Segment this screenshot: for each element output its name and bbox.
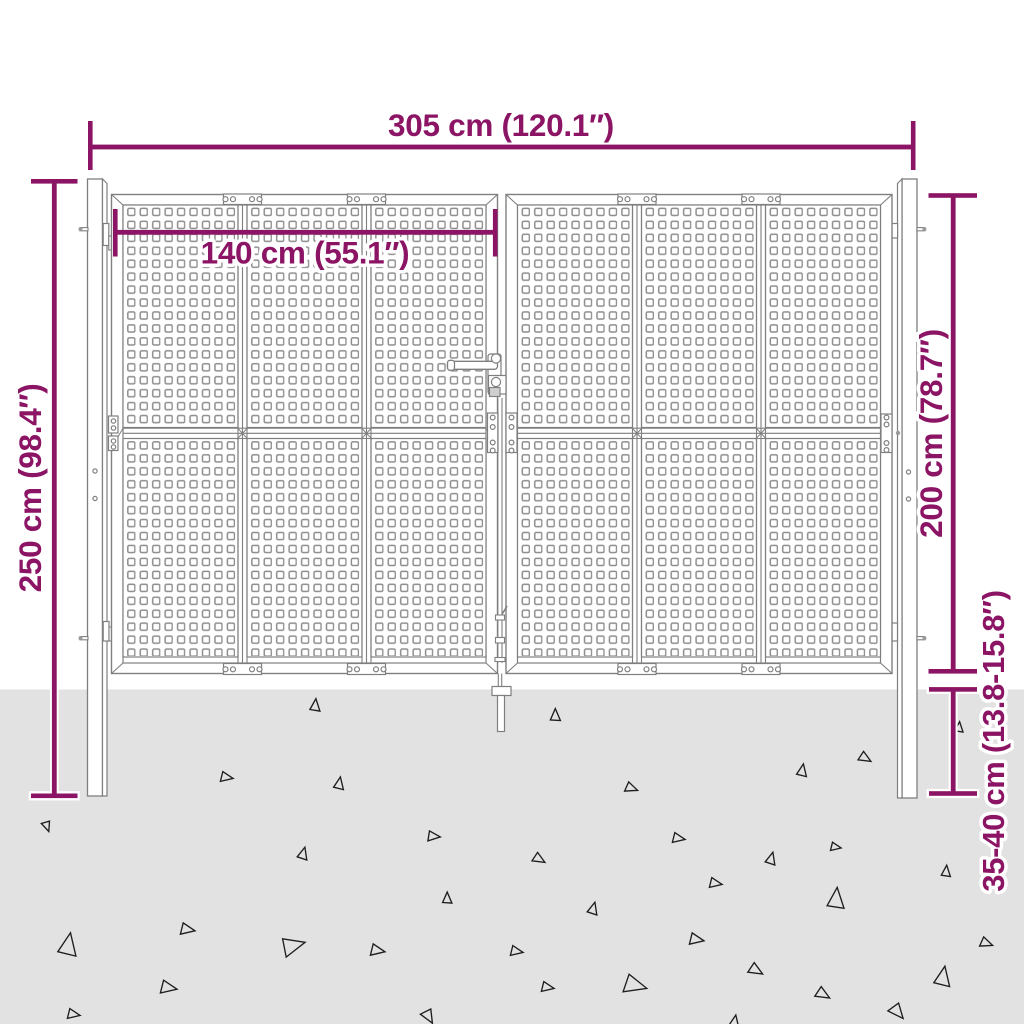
svg-text:250 cm (98.4″): 250 cm (98.4″) [12, 384, 48, 593]
svg-text:35-40 cm (13.8-15.8″): 35-40 cm (13.8-15.8″) [976, 590, 1011, 892]
svg-text:140 cm (55.1″): 140 cm (55.1″) [201, 235, 410, 271]
svg-text:305 cm (120.1″): 305 cm (120.1″) [388, 107, 614, 143]
svg-text:200 cm (78.7″): 200 cm (78.7″) [913, 329, 949, 538]
